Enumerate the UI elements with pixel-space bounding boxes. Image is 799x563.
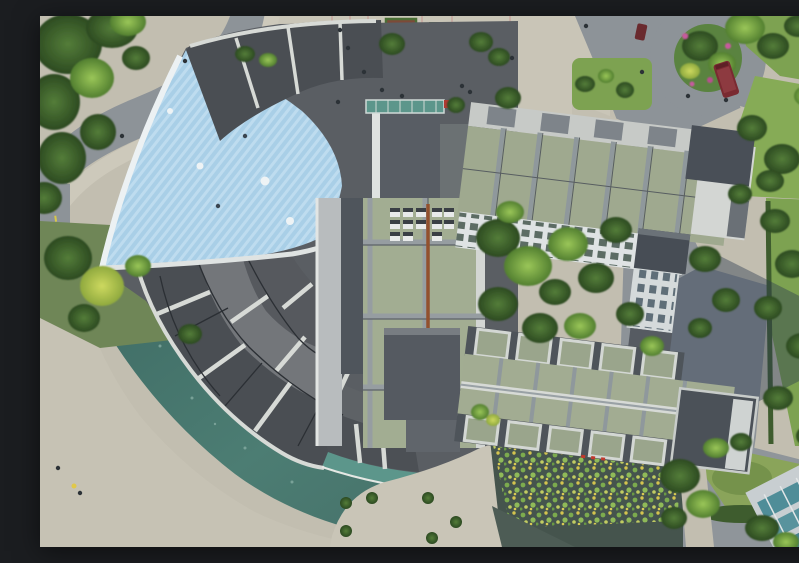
parapet bbox=[372, 108, 380, 198]
walkway-roof-strip bbox=[316, 198, 342, 446]
palm bbox=[486, 414, 500, 426]
entrance-block-roof bbox=[380, 108, 440, 198]
mid-dark-block bbox=[384, 328, 460, 420]
aerial-photo bbox=[40, 16, 799, 547]
pink-flowers bbox=[707, 77, 713, 83]
pink-flowers bbox=[725, 43, 731, 49]
aerial-scene bbox=[40, 16, 799, 547]
mid-dark-block-edge bbox=[384, 328, 460, 335]
stair-roof-strip bbox=[341, 198, 363, 374]
pedestrian-yellow bbox=[72, 484, 77, 489]
south-step-block bbox=[406, 420, 460, 452]
pink-flowers bbox=[682, 33, 688, 39]
palm bbox=[471, 404, 489, 420]
pink-flowers bbox=[690, 82, 695, 87]
entrance-glass-canopy bbox=[366, 100, 444, 113]
